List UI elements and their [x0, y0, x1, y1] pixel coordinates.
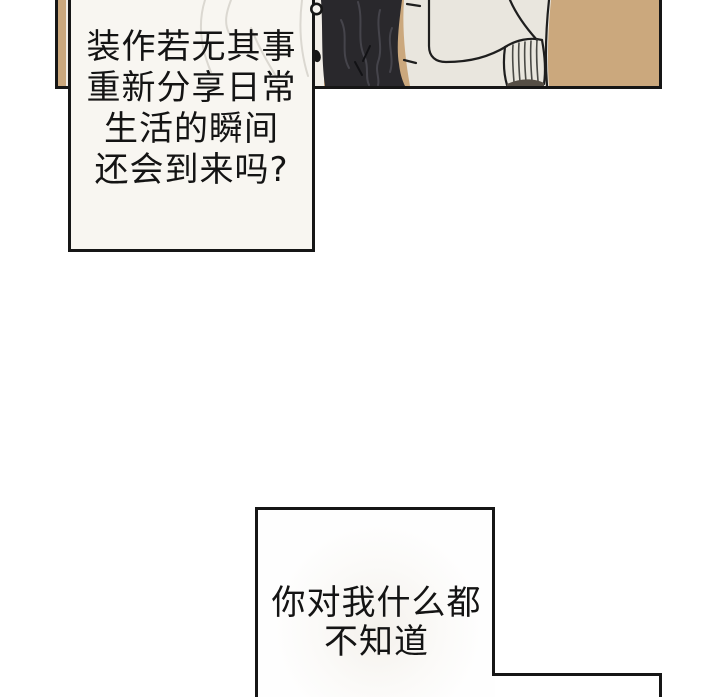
speech-top-line-4: 还会到来吗?	[71, 150, 312, 191]
button-solid	[311, 49, 322, 63]
speech-text-top: 装作若无其事 重新分享日常 生活的瞬间 还会到来吗?	[71, 27, 312, 191]
speech-text-bottom: 你对我什么都 不知道	[258, 584, 495, 662]
coat-buttons	[306, 0, 328, 68]
speech-top-line-1: 装作若无其事	[71, 27, 312, 68]
speech-bubble-bottom: 你对我什么都 不知道	[255, 507, 495, 697]
bubble-bottom-right-border	[492, 507, 495, 676]
speech-top-line-2: 重新分享日常	[71, 68, 312, 109]
comic-page: 装作若无其事 重新分享日常 生活的瞬间 还会到来吗? 你对我什么都 不知道	[0, 0, 720, 697]
speech-bubble-top: 装作若无其事 重新分享日常 生活的瞬间 还会到来吗?	[68, 0, 315, 252]
button-ring	[311, 4, 321, 14]
speech-bottom-line-1: 你对我什么都	[258, 584, 495, 623]
next-panel-top-border	[492, 673, 662, 676]
dark-coat-figure	[321, 0, 405, 86]
next-panel-right-border	[659, 673, 662, 697]
speech-bottom-line-2: 不知道	[258, 623, 495, 662]
speech-top-line-3: 生活的瞬间	[71, 109, 312, 150]
cream-cardigan	[403, 0, 551, 86]
